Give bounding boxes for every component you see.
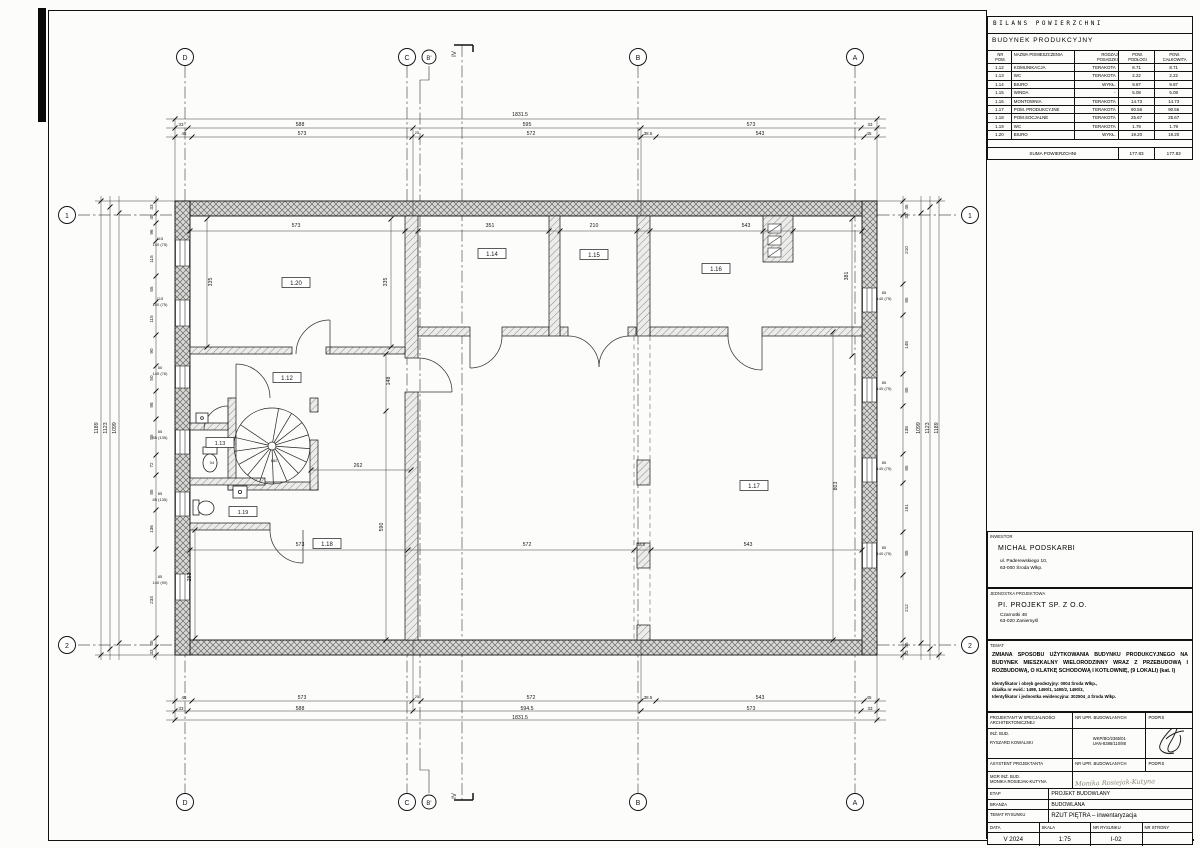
- design-unit-box: JEDNOSTKA PROJEKTOWA PI. PROJEKT SP. Z O…: [987, 588, 1193, 640]
- plan-label: 543: [742, 223, 751, 229]
- investor-address-2: 63-000 Środa Wlkp.: [1000, 565, 1192, 572]
- plan-label: 33: [868, 706, 873, 711]
- plan-label: 1189: [94, 422, 100, 433]
- axis-grid: [78, 45, 956, 800]
- table-row: 1.15WINDA-5.085.08: [988, 89, 1192, 97]
- table-sum-row: SUMA POWIERZCHNI 177.83 177.83: [988, 148, 1192, 159]
- plan-label: 33: [904, 213, 909, 219]
- area-table-body: 1.12KOMUNIKACJATERAKOTA8.718.711.13WCTER…: [988, 64, 1192, 140]
- plan-label: 145 (76): [153, 371, 169, 376]
- plan-label: A: [853, 800, 858, 807]
- plan-label: 573: [747, 122, 756, 128]
- window: [863, 458, 877, 482]
- stage-row: ETAP PROJEKT BUDOWLANY: [988, 789, 1192, 800]
- signature-table: PROJEKTANT W SPECJALNOŚCI ARCHITEKTONICZ…: [987, 712, 1193, 845]
- drawing-title-row: TEMAT RYSUNKU RZUT PIĘTRA – inwentaryzac…: [988, 810, 1192, 823]
- plan-label: 85: [882, 460, 887, 465]
- stage-label: ETAP: [988, 789, 1049, 799]
- plan-label: 55: [149, 286, 154, 292]
- plan-label: 1831.5: [512, 715, 528, 721]
- table-cell: 8.71: [1155, 64, 1192, 72]
- plan-label: 588: [296, 706, 305, 712]
- table-cell: 25.67: [1155, 114, 1192, 122]
- plan-label: 136: [149, 525, 154, 533]
- room-number-label: 1.19: [238, 510, 249, 516]
- table-cell: WC: [1012, 123, 1075, 131]
- plan-label: 212: [904, 604, 909, 612]
- plan-label: 140 (90): [153, 580, 169, 585]
- table-cell: 1.16: [988, 98, 1012, 106]
- plan-label: 182: [271, 458, 278, 463]
- assistant-header-row: ASYSTENT PROJEKTANTA NR UPR. BUDOWLANYCH…: [988, 759, 1192, 772]
- plan-label: 1123: [925, 422, 931, 433]
- plan-label: 90: [149, 348, 154, 354]
- plan-label: 151: [904, 504, 909, 512]
- subject-text: ZMIANA SPOSOBU UŻYTKOWANIA BUDYNKU PRODU…: [992, 651, 1188, 676]
- drawing-title-value: RZUT PIĘTRA – inwentaryzacja: [1049, 810, 1192, 822]
- table-cell: 19.20: [1119, 131, 1156, 139]
- investor-box: INWESTOR MICHAŁ PODSKARBI ul. Paderewski…: [987, 531, 1193, 588]
- plan-label: 590: [379, 523, 385, 532]
- table-cell: 2.22: [1155, 72, 1192, 80]
- table-cell: 8.71: [1119, 64, 1156, 72]
- plan-label: 115: [157, 296, 164, 301]
- plan-label: 148: [386, 377, 392, 386]
- table-cell: TERAKOTA: [1075, 114, 1119, 122]
- table-cell: 1.17: [988, 106, 1012, 114]
- plan-label: 140 (75): [153, 302, 169, 307]
- plan-label: 381: [844, 272, 850, 281]
- plan-label: A: [853, 55, 858, 62]
- col-header: RODZAJ POSADZKI: [1075, 51, 1119, 64]
- scale-label: SKALA: [1040, 823, 1092, 832]
- plan-label: 85 (135): [153, 435, 169, 440]
- table-row: 1.13WCTERAKOTA2.222.22: [988, 72, 1192, 80]
- plan-label: 38.5: [644, 695, 653, 700]
- designer-row: INŻ. BUD. RYSZARD KOWALSKI WKP/BO/2365/0…: [988, 729, 1192, 759]
- plan-label: 33: [149, 649, 154, 655]
- sum-total: 177.83: [1155, 148, 1192, 159]
- window: [863, 288, 877, 312]
- table-row: 1.14BIUROWYKŁ. DYWANOWA9.879.87: [988, 81, 1192, 89]
- plan-label: 335: [208, 278, 214, 287]
- room-number-label: 1.17: [748, 484, 760, 490]
- table-cell: 5.08: [1119, 89, 1156, 97]
- col-header: NR POM.: [988, 51, 1012, 64]
- plan-label: D: [182, 55, 187, 62]
- designer-role-label: PROJEKTANT W SPECJALNOŚCI ARCHITEKTONICZ…: [988, 713, 1073, 728]
- plan-label: 85: [158, 574, 163, 579]
- plan-label: 140 (75): [877, 296, 893, 301]
- plan-label: 1: [65, 213, 69, 220]
- removed-partition-dashed: [634, 336, 650, 640]
- table-cell: 1.13: [988, 72, 1012, 80]
- plan-label: 140 (75): [877, 386, 893, 391]
- table-row: 1.18POM.SOCJALNETERAKOTA25.6725.67: [988, 114, 1192, 122]
- table-cell: 2.22: [1119, 72, 1156, 80]
- plan-label: 262: [354, 463, 363, 469]
- plan-label: IV: [452, 51, 458, 57]
- plan-label: 140 (75): [877, 551, 893, 556]
- subject-label: TEMAT: [990, 643, 1192, 648]
- plan-label: 25: [415, 130, 420, 135]
- assistant-role-label: ASYSTENT PROJEKTANTA: [988, 759, 1073, 771]
- plan-label: D: [182, 800, 187, 807]
- meta-value-row: V 2024 1:75 I-02: [988, 833, 1192, 846]
- plan-label: 33: [868, 122, 873, 127]
- table-cell: POM. PRODUKCYJNE: [1012, 106, 1075, 114]
- plan-label: 588: [296, 122, 305, 128]
- table-cell: 1.15: [988, 89, 1012, 97]
- plan-label: 85: [882, 290, 887, 295]
- drawing-number-label: NR RYSUNKU: [1091, 823, 1143, 832]
- table-row: 1.12KOMUNIKACJATERAKOTA8.718.71: [988, 64, 1192, 72]
- table-cell: TERAKOTA: [1075, 72, 1119, 80]
- window: [863, 543, 877, 568]
- table-cell: 1.12: [988, 64, 1012, 72]
- plan-label: 543: [744, 542, 753, 548]
- plan-label: 33: [179, 706, 184, 711]
- geodesy-line-1: Identyfikator i obręb geodezyjny: 0004 Ś…: [992, 681, 1188, 688]
- design-unit-address-2: 63-020 Zaniemyśl: [1000, 619, 1192, 625]
- plan-label: 595: [523, 122, 532, 128]
- plan-label: 1831.5: [512, 112, 528, 118]
- table-cell: 1.14: [988, 81, 1012, 89]
- plan-label: 25: [415, 694, 420, 699]
- plan-label: 573: [296, 542, 305, 548]
- room-number-label: 1.16: [710, 267, 722, 273]
- geodesy-line-2: działka nr ewid.: 1498, 1490/1, 1490/2, …: [992, 687, 1188, 694]
- spiral-staircase: [234, 408, 310, 484]
- table-cell: TERAKOTA: [1075, 106, 1119, 114]
- table-header-row: NR POM. NAZWA POMIESZCZENIA RODZAJ POSAD…: [988, 51, 1192, 64]
- plan-label: 72: [149, 462, 154, 468]
- plan-label: 45: [904, 642, 909, 648]
- plan-label: 234: [149, 596, 154, 604]
- plan-label: 50: [158, 365, 163, 370]
- stage-value: PROJEKT BUDOWLANY: [1049, 789, 1192, 799]
- plan-label: B': [426, 801, 431, 807]
- designer-license-2: UAN-8386/110/88: [1075, 741, 1143, 746]
- plan-label: 573: [747, 706, 756, 712]
- sum-floor: 177.83: [1119, 148, 1156, 159]
- door: [418, 358, 452, 392]
- plan-label: 85: [904, 465, 909, 471]
- plan-label: 2: [968, 643, 972, 650]
- table-title: BILANS POWIERZCHNI: [988, 17, 1192, 34]
- plan-label: 351: [486, 223, 495, 229]
- plan-label: 335: [383, 278, 389, 287]
- col-header: POW. PODŁOGI: [1119, 51, 1156, 64]
- plan-label: 543: [756, 131, 765, 137]
- plan-label: 115: [149, 315, 154, 323]
- assistant-name: MONIKA ROSIEJAK-KUTYNA: [990, 779, 1070, 784]
- signature-scribble: [1146, 729, 1190, 757]
- window: [863, 378, 877, 402]
- plan-label: 573: [298, 131, 307, 137]
- table-cell: TERAKOTA: [1075, 98, 1119, 106]
- plan-label: 138: [904, 426, 909, 434]
- door-double: [568, 336, 630, 367]
- table-cell: 1.20: [988, 131, 1012, 139]
- window: [176, 430, 190, 454]
- designer-title: INŻ. BUD.: [990, 731, 1070, 736]
- plan-label: C: [404, 55, 409, 62]
- plan-label: 45: [182, 131, 187, 136]
- plan-label: 140 (75): [877, 466, 893, 471]
- table-cell: KOMUNIKACJA: [1012, 64, 1075, 72]
- plan-label: 572: [523, 542, 532, 548]
- plan-label: 98: [149, 402, 154, 408]
- plan-label: 04: [210, 460, 215, 465]
- date-label: DATA: [988, 823, 1040, 832]
- table-cell: BIURO: [1012, 81, 1075, 89]
- subject-box: TEMAT ZMIANA SPOSOBU UŻYTKOWANIA BUDYNKU…: [987, 640, 1193, 712]
- table-cell: 1.79: [1155, 123, 1192, 131]
- table-cell: 9.87: [1119, 81, 1156, 89]
- door: [470, 336, 502, 368]
- plan-label: 45: [867, 131, 872, 136]
- plan-label: 85: [158, 429, 163, 434]
- plan-label: 573: [298, 695, 307, 701]
- table-row: 1.17POM. PRODUKCYJNETERAKOTA90.5690.56: [988, 106, 1192, 114]
- assistant-signature-label: PODPIS: [1146, 759, 1192, 771]
- plan-label: 1189: [934, 422, 940, 433]
- geodesy-line-3: Identyfikator i jednostka ewidencyjna: 3…: [992, 694, 1188, 701]
- license-number-label: NR UPR. BUDOWLANYCH: [1073, 713, 1146, 728]
- room-number-label: 1.14: [486, 252, 498, 258]
- plan-label: 210: [904, 246, 909, 254]
- window: [176, 240, 190, 266]
- room-number-label: 1.15: [588, 253, 600, 259]
- designer-name: RYSZARD KOWALSKI: [990, 740, 1070, 745]
- window: [176, 492, 190, 516]
- table-cell: WYKŁ. DYWANOWA: [1075, 81, 1119, 89]
- walls-outer: [175, 201, 877, 655]
- plan-label: 45: [904, 204, 909, 210]
- signature-label: PODPIS: [1146, 713, 1192, 728]
- plan-label: 85: [158, 491, 163, 496]
- table-cell: 25.67: [1119, 114, 1156, 122]
- table-cell: BIURO: [1012, 131, 1075, 139]
- plan-label: 45: [149, 640, 154, 646]
- plan-label: 140 (75): [153, 242, 169, 247]
- branch-row: BRANŻA BUDOWLANA: [988, 800, 1192, 810]
- table-cell: TERAKOTA: [1075, 123, 1119, 131]
- plan-label: C: [404, 800, 409, 807]
- sink: [196, 413, 208, 423]
- plan-label: 1123: [103, 422, 109, 433]
- investor-address-1: ul. Paderewskiego 10,: [1000, 558, 1192, 565]
- table-cell: 14.73: [1155, 98, 1192, 106]
- subject-geodesy: Identyfikator i obręb geodezyjny: 0004 Ś…: [992, 681, 1188, 702]
- floor-plan: DCB'BADCB'BA1212IVIV1831.533588595573334…: [0, 0, 985, 848]
- plan-label: 33: [149, 204, 154, 210]
- plan-label: 85: [904, 297, 909, 303]
- investor-name: MICHAŁ PODSKARBI: [998, 545, 1192, 552]
- plan-label: 1099: [112, 422, 118, 434]
- title-block: BILANS POWIERZCHNI BUDYNEK PRODUKCYJNY N…: [986, 10, 1195, 839]
- door: [236, 364, 270, 398]
- table-cell: 19.20: [1155, 131, 1192, 139]
- designer-signature-cell: [1146, 729, 1192, 758]
- plan-label: 594.5: [521, 706, 534, 712]
- door: [296, 320, 330, 354]
- assistant-handwritten-signature: Monika Rosiejak-Kutyna: [1075, 772, 1190, 788]
- plan-label: B: [636, 800, 641, 807]
- page-number-label: NR STRONY: [1143, 823, 1193, 832]
- table-cell: TERAKOTA: [1075, 64, 1119, 72]
- plan-label: 283: [187, 573, 193, 582]
- plan-label: 85: [882, 545, 887, 550]
- plan-label: 115: [157, 236, 164, 241]
- toilet: [193, 500, 214, 515]
- table-cell: WINDA: [1012, 89, 1075, 97]
- table-cell: MONTOWNIA: [1012, 98, 1075, 106]
- drawing-title-label: TEMAT RYSUNKU: [988, 810, 1049, 822]
- table-cell: 1.18: [988, 114, 1012, 122]
- room-number-label: 1.12: [281, 376, 293, 382]
- table-subtitle: BUDYNEK PRODUKCYJNY: [988, 34, 1192, 51]
- table-cell: 1.79: [1119, 123, 1156, 131]
- scale-value: 1:75: [1040, 833, 1092, 846]
- table-row: 1.20BIUROWYKŁ. DYWANOWA19.2019.20: [988, 131, 1192, 139]
- table-cell: POM.SOCJALNE: [1012, 114, 1075, 122]
- plan-label: 96: [149, 229, 154, 235]
- plan-label: 210: [590, 223, 599, 229]
- table-cell: 14.73: [1119, 98, 1156, 106]
- plan-label: 33: [179, 122, 184, 127]
- plan-label: 45: [182, 695, 187, 700]
- designer-header-row: PROJEKTANT W SPECJALNOŚCI ARCHITEKTONICZ…: [988, 713, 1192, 729]
- window: [176, 300, 190, 326]
- drawing-number-value: I-02: [1091, 833, 1143, 846]
- plan-label: 85: [904, 387, 909, 393]
- assistant-license-label: NR UPR. BUDOWLANYCH: [1073, 759, 1146, 771]
- plan-label: 38.5: [644, 131, 653, 136]
- plan-label: 572: [527, 695, 536, 701]
- drawing-sheet: DCB'BADCB'BA1212IVIV1831.533588595573334…: [0, 0, 1200, 848]
- plan-label: 38.5: [637, 542, 646, 547]
- branch-label: BRANŻA: [988, 800, 1049, 809]
- plan-label: IV: [452, 793, 458, 799]
- plan-label: 803: [833, 482, 839, 491]
- plan-label: B: [636, 55, 641, 62]
- chimney-flues: [768, 224, 781, 257]
- design-unit-name: PI. PROJEKT SP. Z O.O.: [998, 602, 1192, 609]
- plan-label: 543: [756, 695, 765, 701]
- table-row: 1.16MONTOWNIATERAKOTA14.7314.73: [988, 98, 1192, 106]
- room-number-label: 1.18: [321, 542, 333, 548]
- door: [728, 336, 762, 370]
- plan-label: 33: [904, 650, 909, 656]
- page-number-value: [1143, 833, 1193, 846]
- plan-label: 148: [904, 341, 909, 349]
- table-cell: WC: [1012, 72, 1075, 80]
- table-row: 1.19WCTERAKOTA1.791.79: [988, 123, 1192, 131]
- room-number-label: 1.13: [215, 441, 226, 447]
- table-cell: WYKŁ. DYWANOWA: [1075, 131, 1119, 139]
- plan-label: 1099: [916, 422, 922, 434]
- col-header: POW. CAŁKOWITA: [1155, 51, 1192, 64]
- table-cell: 90.56: [1155, 106, 1192, 114]
- col-header: NAZWA POMIESZCZENIA: [1012, 51, 1075, 64]
- table-cell: 5.08: [1155, 89, 1192, 97]
- table-cell: -: [1075, 89, 1119, 97]
- plan-label: 85 (135): [153, 497, 169, 502]
- plan-label: 85: [904, 550, 909, 556]
- plan-label: 45: [867, 695, 872, 700]
- date-value: V 2024: [988, 833, 1040, 846]
- room-number-label: 1.20: [290, 281, 302, 287]
- plan-label: 2: [65, 643, 69, 650]
- branch-value: BUDOWLANA: [1049, 800, 1192, 809]
- design-unit-label: JEDNOSTKA PROJEKTOWA: [990, 591, 1192, 596]
- investor-label: INWESTOR: [990, 534, 1192, 539]
- plan-label: 85: [149, 489, 154, 495]
- plan-label: 572: [527, 131, 536, 137]
- area-balance-table: BILANS POWIERZCHNI BUDYNEK PRODUKCYJNY N…: [987, 16, 1193, 160]
- table-cell: 9.87: [1155, 81, 1192, 89]
- plan-label: 573: [292, 223, 301, 229]
- table-cell: 1.19: [988, 123, 1012, 131]
- plan-label: 1: [968, 213, 972, 220]
- meta-header-row: DATA SKALA NR RYSUNKU NR STRONY: [988, 823, 1192, 833]
- plan-label: 45: [149, 214, 154, 220]
- plan-label: B': [426, 56, 431, 62]
- window: [176, 366, 190, 388]
- table-cell: 90.56: [1119, 106, 1156, 114]
- table-spacer: [988, 140, 1192, 148]
- plan-label: 85: [882, 380, 887, 385]
- assistant-row: MGR INŻ. BUD. MONIKA ROSIEJAK-KUTYNA Mon…: [988, 772, 1192, 789]
- plan-label: 115: [149, 255, 154, 263]
- sum-label: SUMA POWIERZCHNI: [988, 148, 1119, 159]
- sink: [233, 486, 247, 498]
